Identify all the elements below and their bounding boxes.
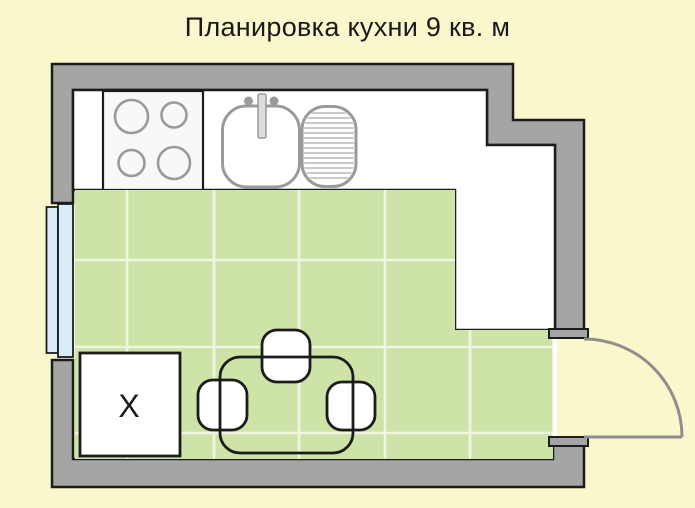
faucet-icon — [258, 94, 266, 138]
refrigerator: Х — [80, 353, 180, 456]
doorway-threshold — [553, 338, 558, 437]
chair-right — [327, 382, 375, 430]
drainboard — [302, 107, 356, 187]
door — [549, 329, 682, 446]
refrigerator-label: Х — [118, 388, 139, 424]
tap-dot-right — [270, 97, 279, 106]
door-jamb-bottom — [549, 437, 588, 446]
floor-plan-drawing: Х — [0, 0, 695, 508]
sink — [223, 94, 300, 187]
tap-dot-left — [244, 97, 253, 106]
chair-left — [198, 380, 247, 430]
door-swing-arc — [584, 339, 682, 437]
door-jamb-top — [549, 329, 588, 338]
window-pane-outer — [47, 207, 59, 353]
window-pane-inner — [58, 204, 73, 357]
kitchen-floor-plan: Планировка кухни 9 кв. м — [0, 0, 695, 508]
stove — [103, 91, 203, 190]
